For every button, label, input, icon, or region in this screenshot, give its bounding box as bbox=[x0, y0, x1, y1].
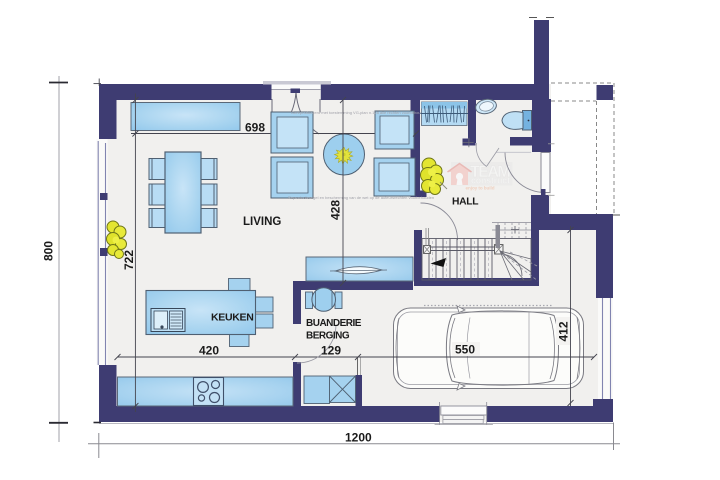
svg-text:Gereproduceerd met toestemming: Gereproduceerd met toestemming VG-plan n… bbox=[291, 110, 436, 115]
svg-text:800: 800 bbox=[42, 241, 56, 261]
svg-text:420: 420 bbox=[199, 344, 219, 358]
svg-text:129: 129 bbox=[321, 344, 341, 358]
svg-text:698: 698 bbox=[245, 121, 265, 135]
svg-text:BUANDERIE: BUANDERIE bbox=[306, 318, 362, 329]
svg-text:428: 428 bbox=[329, 200, 343, 220]
svg-text:722: 722 bbox=[122, 250, 136, 270]
svg-text:construct: construct bbox=[471, 176, 510, 186]
svg-text:LIVING: LIVING bbox=[243, 216, 281, 228]
svg-text:1200: 1200 bbox=[345, 431, 372, 445]
svg-text:BERGING: BERGING bbox=[306, 331, 350, 342]
svg-text:KEUKEN: KEUKEN bbox=[211, 312, 254, 324]
svg-text:412: 412 bbox=[557, 321, 571, 341]
svg-text:HALL: HALL bbox=[452, 197, 478, 208]
svg-text:Reproductieregel en beschermin: Reproductieregel en bescherming van de w… bbox=[288, 195, 434, 200]
svg-text:enjoy to build: enjoy to build bbox=[466, 186, 495, 191]
svg-text:550: 550 bbox=[455, 343, 475, 357]
